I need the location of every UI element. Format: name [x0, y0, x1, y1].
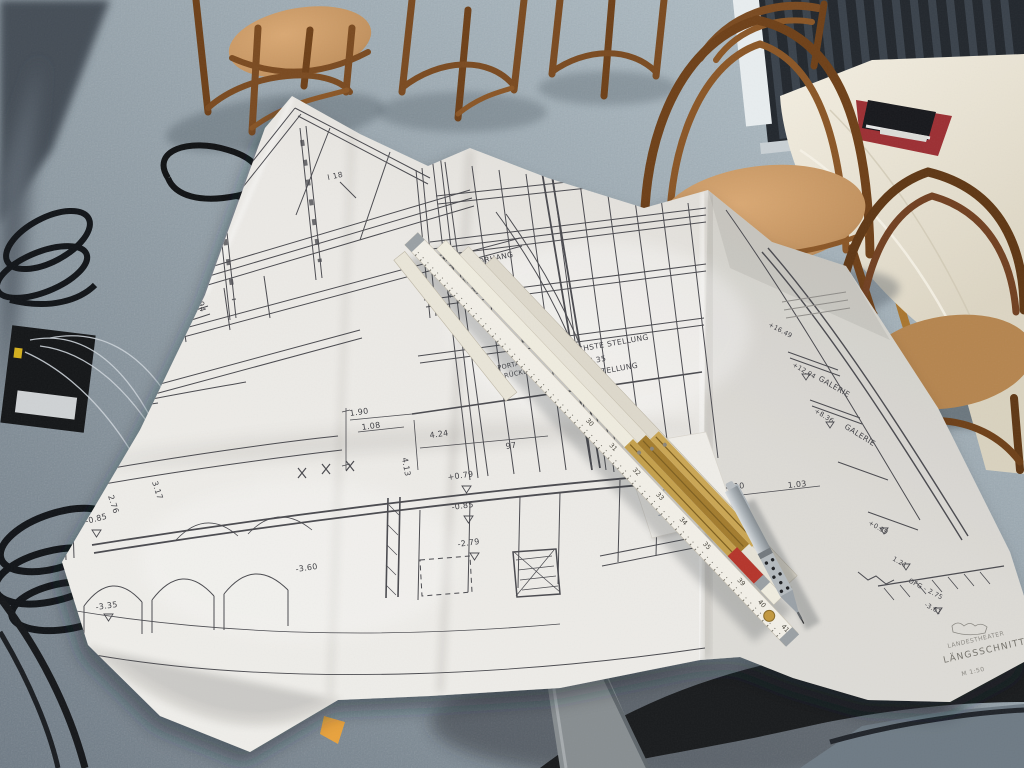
- photo-grain: [0, 0, 1024, 768]
- photo-scene: I 18 STAHL- SCHUTZVORHANG SCHALL- VORHAN…: [0, 0, 1024, 768]
